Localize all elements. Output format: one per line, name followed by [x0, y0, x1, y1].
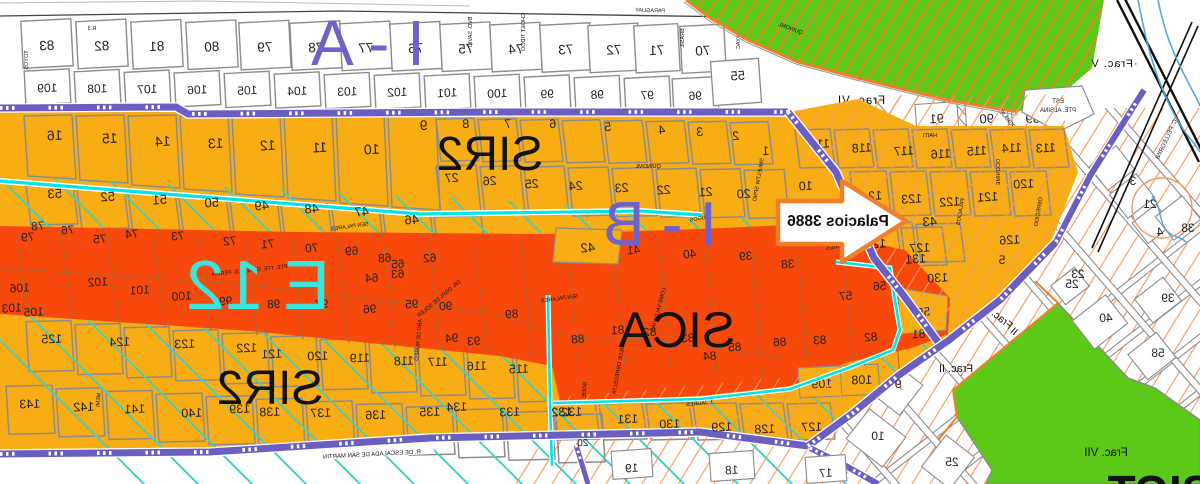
svg-text:70: 70 [695, 43, 711, 59]
svg-text:105: 105 [23, 304, 44, 319]
svg-text:134: 134 [446, 399, 468, 414]
svg-text:90: 90 [979, 111, 994, 127]
svg-text:75: 75 [92, 232, 107, 247]
svg-text:SIR2: SIR2 [217, 362, 324, 415]
svg-text:49: 49 [254, 198, 269, 214]
svg-text:20: 20 [736, 187, 751, 202]
svg-text:47: 47 [354, 204, 369, 220]
svg-text:120: 120 [1013, 176, 1035, 191]
svg-text:25: 25 [945, 455, 959, 469]
svg-text:18: 18 [724, 463, 739, 478]
svg-text:81: 81 [149, 38, 165, 54]
svg-text:141: 141 [124, 401, 146, 416]
svg-text:132: 132 [561, 404, 583, 419]
svg-text:108: 108 [87, 81, 108, 96]
svg-text:11: 11 [312, 139, 328, 156]
svg-text:105: 105 [237, 83, 258, 98]
svg-text:64: 64 [364, 271, 379, 286]
svg-text:140: 140 [181, 405, 203, 420]
svg-text:SIR2: SIR2 [437, 128, 544, 181]
svg-text:43: 43 [922, 214, 937, 230]
svg-text:13: 13 [207, 134, 224, 151]
svg-text:129: 129 [711, 419, 733, 434]
svg-text:97: 97 [640, 88, 654, 103]
svg-text:14: 14 [154, 132, 171, 149]
svg-text:HAITI: HAITI [923, 133, 938, 139]
svg-text:80: 80 [204, 39, 220, 55]
svg-text:102: 102 [87, 274, 108, 289]
svg-text:109: 109 [37, 80, 58, 95]
svg-text:98: 98 [590, 87, 604, 102]
svg-text:122: 122 [939, 194, 961, 209]
svg-text:124: 124 [109, 334, 131, 349]
svg-text:OCONIME: OCONIME [996, 159, 1002, 186]
svg-text:72: 72 [606, 42, 622, 58]
svg-text:142: 142 [73, 399, 95, 414]
svg-text:4: 4 [1156, 225, 1163, 239]
svg-text:R.3: R.3 [88, 26, 97, 32]
svg-text:38: 38 [1181, 221, 1195, 235]
svg-text:5: 5 [998, 253, 1005, 267]
svg-text:118: 118 [851, 140, 872, 155]
svg-text:122: 122 [236, 340, 258, 355]
svg-text:96: 96 [362, 302, 377, 317]
svg-text:94: 94 [444, 331, 459, 346]
svg-text:QUINOML: QUINOML [635, 164, 661, 170]
svg-text:101: 101 [129, 282, 150, 297]
svg-text:79: 79 [20, 230, 35, 245]
svg-text:3: 3 [1129, 174, 1136, 188]
svg-text:136: 136 [365, 407, 387, 422]
svg-text:88: 88 [570, 332, 585, 347]
svg-text:125: 125 [41, 331, 63, 346]
svg-text:83: 83 [812, 333, 827, 348]
svg-text:57: 57 [838, 289, 853, 304]
svg-text:82: 82 [94, 38, 110, 54]
svg-text:93: 93 [466, 334, 481, 349]
svg-text:CHOET TIDOO: CHOET TIDOO [521, 13, 527, 52]
svg-text:39: 39 [1161, 291, 1175, 305]
svg-text:121: 121 [261, 346, 283, 361]
svg-text:69: 69 [344, 244, 359, 259]
svg-text:130: 130 [927, 270, 949, 285]
svg-text:SICA: SICA [618, 302, 735, 358]
svg-text:71: 71 [649, 42, 665, 58]
svg-text:15: 15 [101, 129, 118, 146]
svg-text:40: 40 [1099, 311, 1113, 325]
svg-text:1: 1 [762, 144, 770, 158]
svg-text:17: 17 [818, 466, 833, 481]
svg-text:48: 48 [304, 201, 319, 217]
svg-text:118: 118 [393, 353, 414, 368]
svg-text:58: 58 [1151, 346, 1165, 360]
svg-text:101: 101 [437, 85, 458, 100]
svg-text:55: 55 [730, 68, 745, 84]
svg-text:130: 130 [659, 416, 681, 431]
svg-text:BVD. SAVIO: BVD. SAVIO [468, 17, 474, 48]
svg-text:6: 6 [549, 117, 557, 131]
svg-text:126: 126 [999, 232, 1021, 247]
svg-text:131: 131 [905, 251, 927, 266]
svg-text:114: 114 [1001, 140, 1022, 155]
svg-text:103: 103 [337, 84, 358, 99]
svg-text:113: 113 [1035, 140, 1056, 155]
svg-text:123: 123 [901, 191, 923, 206]
svg-text:SICT: SICT [1108, 466, 1200, 484]
svg-text:63: 63 [390, 267, 405, 282]
svg-text:2: 2 [732, 129, 740, 143]
svg-text:24: 24 [568, 179, 583, 194]
svg-text:96: 96 [688, 88, 702, 103]
svg-text:74: 74 [124, 227, 139, 242]
svg-text:73: 73 [558, 42, 574, 58]
svg-text:106: 106 [9, 280, 30, 295]
svg-text:143: 143 [19, 396, 41, 411]
svg-text:39: 39 [738, 249, 753, 264]
svg-text:108: 108 [851, 373, 872, 388]
svg-text:99: 99 [540, 87, 554, 102]
svg-text:19: 19 [624, 461, 639, 476]
svg-text:128: 128 [754, 421, 776, 436]
svg-text:62: 62 [422, 251, 437, 266]
svg-text:116: 116 [930, 146, 951, 161]
svg-text:135: 135 [419, 404, 441, 419]
svg-text:4: 4 [658, 123, 666, 137]
svg-text:117: 117 [893, 143, 914, 158]
svg-text:10: 10 [871, 429, 885, 443]
svg-text:115: 115 [508, 361, 529, 376]
svg-text:10: 10 [363, 140, 380, 157]
svg-text:86: 86 [772, 335, 787, 350]
svg-text:117: 117 [427, 354, 448, 369]
svg-text:73: 73 [170, 229, 185, 244]
svg-text:I - A: I - A [311, 7, 425, 79]
svg-text:5: 5 [604, 120, 612, 134]
svg-text:Palacios 3886: Palacios 3886 [787, 213, 889, 230]
svg-text:89: 89 [504, 307, 519, 322]
svg-text:38: 38 [780, 257, 795, 272]
svg-text:119: 119 [349, 350, 370, 365]
svg-text:127: 127 [801, 419, 823, 434]
svg-text:BRASIL: BRASIL [680, 28, 686, 48]
svg-text:131: 131 [617, 411, 639, 426]
svg-text:68: 68 [377, 251, 392, 266]
svg-text:·Frac. V: ·Frac. V [1090, 58, 1137, 70]
svg-text:95: 95 [404, 297, 419, 312]
svg-text:53: 53 [47, 186, 62, 202]
svg-text:21: 21 [1143, 197, 1157, 211]
svg-text:20: 20 [577, 438, 589, 450]
svg-text:12: 12 [259, 136, 276, 153]
svg-text:TOYOS: TOYOS [24, 50, 30, 69]
svg-text:123: 123 [174, 336, 196, 351]
svg-text:Frac. VII: Frac. VII [1084, 447, 1127, 459]
svg-text:106: 106 [187, 82, 208, 97]
svg-text:56: 56 [872, 279, 887, 294]
svg-text:121: 121 [977, 189, 999, 204]
svg-text:I - B: I - B [603, 190, 717, 259]
svg-text:42: 42 [580, 240, 595, 256]
svg-text:9: 9 [419, 117, 428, 134]
svg-text:76: 76 [60, 223, 75, 238]
svg-text:116: 116 [466, 358, 487, 373]
svg-text:82: 82 [863, 330, 878, 345]
svg-text:133: 133 [499, 404, 521, 419]
svg-text:52: 52 [100, 189, 115, 205]
svg-text:46: 46 [404, 212, 419, 228]
svg-text:79: 79 [257, 39, 273, 55]
svg-text:23: 23 [1071, 267, 1085, 281]
svg-text:E 12: E 12 [186, 246, 330, 324]
svg-text:Frac. II: Frac. II [939, 363, 973, 375]
svg-text:107: 107 [137, 82, 158, 97]
svg-text:115: 115 [966, 143, 987, 158]
svg-text:PTE. ALSINA: PTE. ALSINA [1040, 108, 1076, 114]
svg-text:51: 51 [152, 192, 167, 208]
svg-text:83: 83 [39, 38, 55, 54]
svg-text:102: 102 [387, 85, 408, 100]
svg-text:50: 50 [204, 195, 219, 211]
svg-text:9: 9 [894, 377, 901, 391]
svg-text:3: 3 [696, 125, 704, 139]
svg-text:104: 104 [287, 83, 308, 98]
svg-text:16: 16 [46, 126, 63, 143]
svg-text:100: 100 [487, 86, 508, 101]
svg-text:103: 103 [1, 300, 22, 315]
svg-text:PARAGUAY: PARAGUAY [635, 7, 665, 14]
svg-text:10: 10 [798, 179, 813, 194]
